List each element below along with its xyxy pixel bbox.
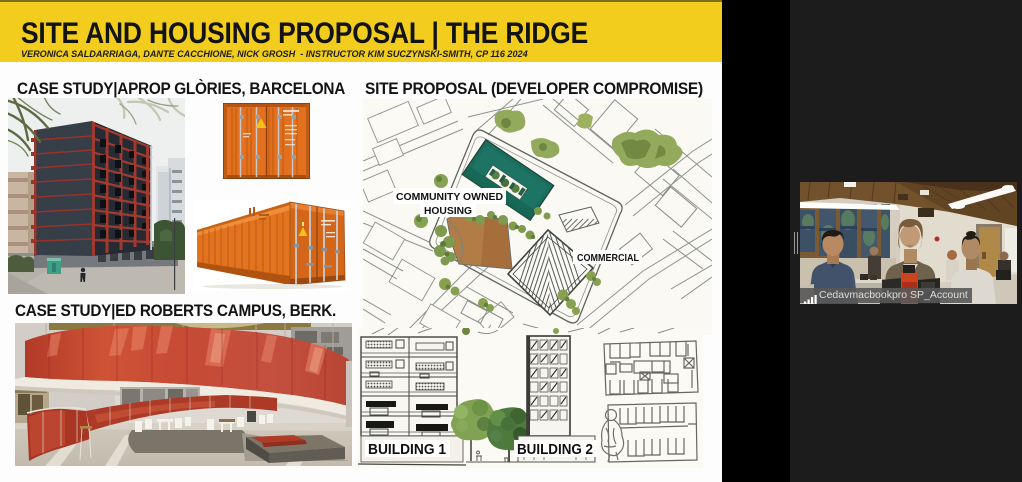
svg-text:BUILDING 2: BUILDING 2: [517, 442, 593, 458]
svg-text:COMMUNITY OWNED: COMMUNITY OWNED: [396, 191, 503, 203]
svg-text:BUILDING 1: BUILDING 1: [368, 442, 446, 458]
svg-text:COMMERCIAL: COMMERCIAL: [577, 252, 640, 264]
svg-text:HOUSING: HOUSING: [424, 205, 472, 217]
